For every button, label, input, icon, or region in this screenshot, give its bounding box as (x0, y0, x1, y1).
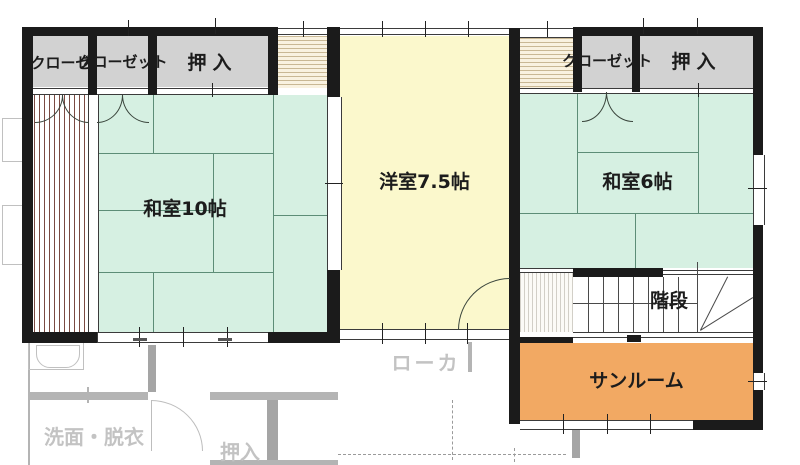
wall (22, 332, 97, 343)
label-sunroom: サンルーム (520, 371, 753, 392)
window-tick (698, 83, 699, 97)
window-tick (303, 21, 304, 37)
label-yoshitsu75: 洋室7.5帖 (340, 172, 509, 193)
window-sash (218, 338, 232, 341)
stair-rail-top (663, 270, 753, 275)
tatami-line (635, 213, 636, 268)
window-tick (468, 21, 469, 37)
tatami-line (273, 95, 274, 332)
label-closet-kurozetto-left: クローゼット (97, 54, 148, 71)
wall (573, 268, 663, 277)
wall (573, 27, 763, 36)
window-tick (128, 20, 129, 36)
window-tick (139, 327, 140, 347)
wall (268, 27, 278, 95)
window-sash (133, 338, 147, 341)
opening-bottom-yoshitsu (338, 329, 509, 340)
window-tick (212, 83, 213, 97)
wall (753, 225, 763, 373)
ghost-tick (87, 387, 89, 403)
tatami-line (520, 213, 753, 214)
window-tick (697, 18, 698, 34)
ghost-door-arc (151, 400, 203, 451)
tatami-line (698, 92, 699, 213)
ghost-washbasin-bowl (36, 345, 80, 368)
ghost-room-outline (2, 205, 24, 265)
tatami-line (153, 272, 154, 332)
label-oshiire-right: 押入 (640, 52, 753, 73)
window-tick (425, 21, 426, 37)
window-tick (227, 327, 228, 347)
ghost-wall (572, 428, 580, 458)
ghost-label-senmen: 洗面・脱衣 (38, 426, 150, 448)
stair-tread (603, 277, 604, 332)
ghost-wall (267, 400, 278, 465)
hatched-bay-left (278, 36, 327, 88)
wall (327, 27, 340, 97)
window-tick (183, 327, 184, 347)
tatami-line (577, 152, 698, 153)
window-tick (215, 18, 216, 34)
stair-tread (618, 277, 619, 332)
stair-tread (588, 277, 589, 332)
ghost-label-roka: ローカ (393, 352, 459, 374)
window-tick (382, 323, 383, 344)
tatami-line (97, 272, 273, 273)
wall (693, 420, 755, 430)
wall (627, 335, 641, 342)
wall (520, 337, 573, 343)
window-tick (650, 414, 651, 434)
veranda-strip (34, 95, 88, 332)
window-right-washitsu6 (753, 155, 765, 225)
label-washitsu6: 和室6帖 (577, 172, 698, 193)
wall (327, 270, 340, 343)
label-oshiire-left: 押入 (157, 53, 268, 74)
tatami-line (153, 95, 154, 153)
tatami-line (273, 215, 327, 216)
floor-plan: 洗面・脱衣 押入 ローカ (0, 0, 800, 465)
stair-rail-bottom (573, 332, 753, 338)
window-tick (563, 414, 564, 434)
window-tick (607, 414, 608, 434)
label-closet-kurozetto-right: クローゼット (582, 53, 632, 70)
ghost-dashed-line (452, 400, 453, 460)
window-tick (547, 21, 548, 37)
ghost-label-oshiire: 押入 (214, 441, 266, 463)
label-stairs: 階段 (638, 291, 700, 312)
wall (753, 27, 763, 155)
window-tick (643, 18, 644, 34)
landing-edge (520, 268, 573, 273)
ghost-wall (468, 342, 472, 372)
stair-landing-hatch (520, 273, 573, 332)
tatami-line (97, 153, 273, 154)
stair-tread (633, 277, 634, 332)
window-tick (425, 323, 426, 344)
window-tick (748, 188, 767, 189)
ghost-room-outline (2, 118, 24, 162)
wall (509, 28, 520, 424)
window-tick (382, 21, 383, 37)
ghost-dashed-line (514, 448, 515, 462)
ghost-wall (210, 392, 338, 400)
ghost-wall (148, 345, 156, 392)
label-washitsu10: 和室10帖 (97, 199, 273, 220)
wall (22, 27, 33, 343)
